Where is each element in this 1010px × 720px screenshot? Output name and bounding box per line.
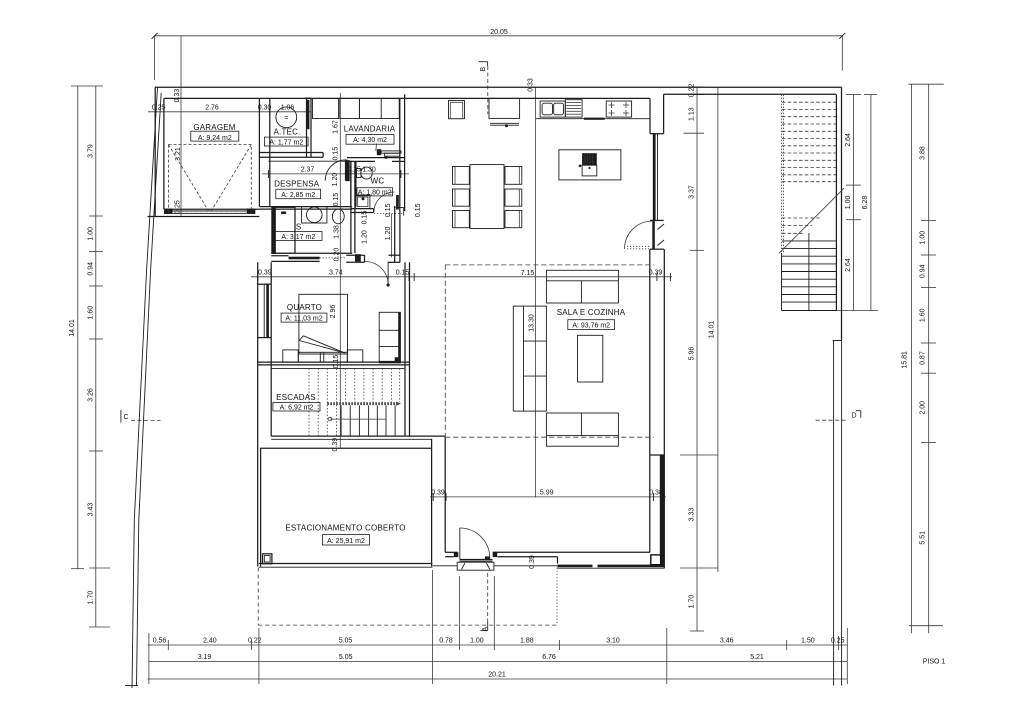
svg-text:1.60: 1.60	[920, 308, 927, 322]
svg-text:1.20: 1.20	[385, 226, 392, 240]
svg-text:3.79: 3.79	[88, 144, 95, 158]
svg-text:C: C	[124, 414, 129, 421]
svg-text:1.70: 1.70	[689, 595, 696, 609]
svg-text:A: 11,03 m2: A: 11,03 m2	[285, 315, 322, 322]
svg-text:A: 1,80 m2: A: 1,80 m2	[358, 189, 392, 196]
svg-text:7.15: 7.15	[521, 270, 535, 277]
svg-text:3.88: 3.88	[920, 146, 927, 160]
svg-text:ESCADAS: ESCADAS	[276, 393, 316, 402]
svg-text:14.01: 14.01	[709, 321, 716, 339]
svg-text:A: 4,30 m2: A: 4,30 m2	[353, 137, 387, 144]
svg-text:1.00: 1.00	[920, 231, 927, 245]
svg-text:1.38: 1.38	[334, 225, 341, 239]
svg-text:0.94: 0.94	[88, 262, 95, 276]
svg-text:LAVANDARIA: LAVANDARIA	[344, 125, 396, 134]
svg-text:0.15: 0.15	[415, 203, 422, 217]
svg-text:1.13: 1.13	[689, 107, 696, 121]
svg-text:1.20: 1.20	[332, 173, 339, 187]
svg-text:2.00: 2.00	[920, 401, 927, 415]
svg-text:1.88: 1.88	[520, 638, 534, 645]
svg-text:GARAGEM: GARAGEM	[193, 123, 235, 132]
svg-text:5.05: 5.05	[339, 638, 353, 645]
svg-text:15.81: 15.81	[902, 351, 909, 369]
svg-text:1.70: 1.70	[88, 591, 95, 605]
svg-text:0.39: 0.39	[431, 489, 445, 496]
svg-text:PISO 1: PISO 1	[923, 659, 946, 666]
svg-text:0.15: 0.15	[333, 147, 340, 161]
svg-text:1.00: 1.00	[845, 195, 852, 209]
svg-text:D: D	[852, 413, 857, 420]
svg-text:20.05: 20.05	[490, 29, 508, 36]
svg-text:3.37: 3.37	[689, 185, 696, 199]
svg-text:A: 93,76 m2: A: 93,76 m2	[572, 323, 610, 330]
svg-text:2.76: 2.76	[205, 104, 219, 111]
svg-text:0.15: 0.15	[333, 193, 340, 207]
svg-text:3.33: 3.33	[689, 508, 696, 522]
svg-text:QUARTO: QUARTO	[287, 303, 322, 312]
svg-text:A: A	[482, 627, 489, 632]
svg-text:A: 1,77 m2: A: 1,77 m2	[269, 139, 303, 146]
svg-text:A: 9,24 m2: A: 9,24 m2	[198, 135, 232, 142]
svg-text:0.33: 0.33	[174, 89, 181, 103]
svg-text:5.05: 5.05	[339, 654, 353, 661]
svg-text:WC: WC	[371, 176, 385, 185]
svg-text:0.39: 0.39	[258, 269, 272, 276]
svg-text:0.15: 0.15	[396, 269, 410, 276]
svg-text:2.37: 2.37	[301, 166, 315, 173]
svg-text:A: 25,91 m2: A: 25,91 m2	[327, 538, 365, 545]
svg-text:3.19: 3.19	[198, 654, 212, 661]
svg-text:0.39: 0.39	[529, 555, 536, 569]
svg-text:13.30: 13.30	[529, 314, 536, 332]
svg-text:3.43: 3.43	[88, 503, 95, 517]
svg-text:0.33: 0.33	[528, 78, 535, 92]
svg-text:5.96: 5.96	[689, 347, 696, 361]
svg-text:0.56: 0.56	[153, 638, 167, 645]
svg-text:A: 6,92 m2: A: 6,92 m2	[280, 405, 314, 412]
svg-text:A.TEC.: A.TEC.	[274, 128, 301, 137]
svg-text:S: S	[296, 223, 302, 232]
svg-text:B: B	[480, 67, 487, 72]
svg-text:ESTACIONAMENTO COBERTO: ESTACIONAMENTO COBERTO	[285, 524, 405, 533]
svg-text:3.21: 3.21	[175, 147, 182, 161]
svg-text:2.64: 2.64	[845, 258, 852, 272]
svg-text:SALA E COZINHA: SALA E COZINHA	[557, 308, 626, 317]
svg-text:0.94: 0.94	[920, 264, 927, 278]
svg-text:1.20: 1.20	[362, 230, 369, 244]
svg-text:=: =	[284, 115, 288, 122]
svg-text:2.40: 2.40	[203, 638, 217, 645]
svg-text:0.20: 0.20	[334, 248, 341, 262]
svg-text:3.26: 3.26	[88, 388, 95, 402]
svg-text:0.78: 0.78	[439, 638, 453, 645]
svg-text:A: 2,85 m2: A: 2,85 m2	[281, 192, 315, 199]
svg-text:0.15: 0.15	[333, 355, 340, 369]
svg-text:0.15: 0.15	[385, 203, 392, 217]
svg-text:5.21: 5.21	[750, 654, 764, 661]
svg-text:2.64: 2.64	[845, 133, 852, 147]
svg-text:1.00: 1.00	[470, 638, 484, 645]
svg-text:0.39: 0.39	[649, 269, 663, 276]
svg-text:1.00: 1.00	[88, 227, 95, 241]
svg-text:0.25: 0.25	[174, 200, 181, 214]
svg-text:1.60: 1.60	[88, 306, 95, 320]
svg-text:3.46: 3.46	[720, 638, 734, 645]
svg-text:0.22: 0.22	[248, 638, 262, 645]
svg-text:5.99: 5.99	[540, 489, 554, 496]
svg-text:A: 3,17 m2: A: 3,17 m2	[281, 234, 315, 241]
svg-text:3.10: 3.10	[606, 638, 620, 645]
svg-text:2.96: 2.96	[330, 305, 337, 319]
svg-text:1.67: 1.67	[333, 120, 340, 134]
svg-text:6.28: 6.28	[862, 196, 869, 210]
svg-text:5.51: 5.51	[920, 531, 927, 545]
svg-text:3.74: 3.74	[329, 269, 343, 276]
svg-text:0.22: 0.22	[689, 83, 696, 97]
svg-text:1.50: 1.50	[801, 638, 815, 645]
svg-text:20.21: 20.21	[488, 672, 506, 679]
svg-text:6.76: 6.76	[542, 654, 556, 661]
svg-text:0.87: 0.87	[920, 351, 927, 365]
svg-text:0.39: 0.39	[332, 438, 339, 452]
svg-text:14.01: 14.01	[69, 319, 76, 337]
svg-text:DESPENSA: DESPENSA	[274, 179, 320, 188]
svg-text:0.25: 0.25	[831, 638, 845, 645]
